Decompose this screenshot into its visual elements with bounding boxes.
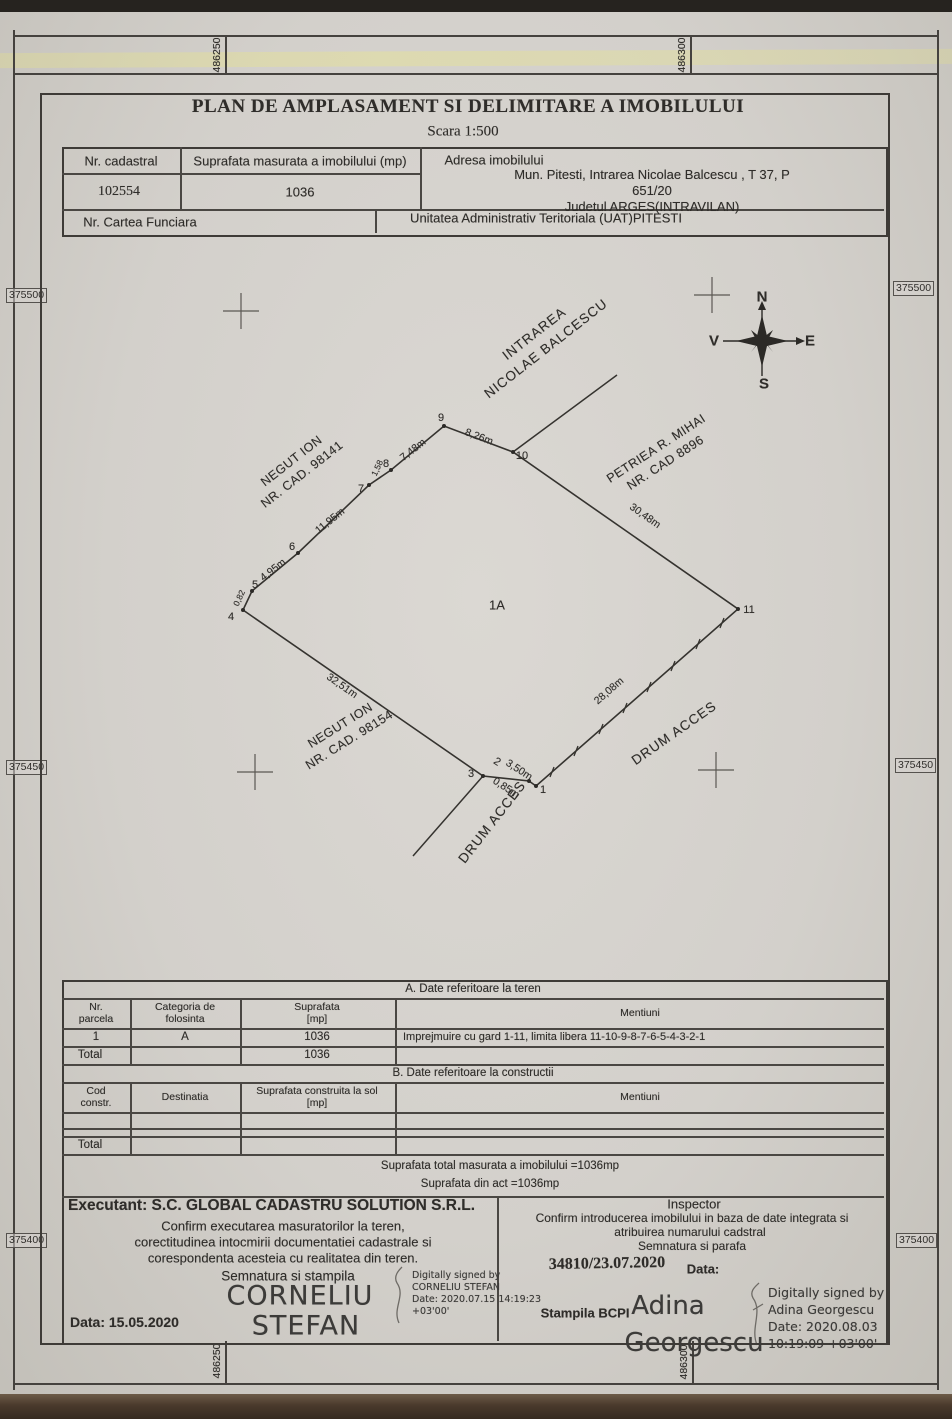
photo-top-edge [0,0,952,12]
street-line [513,375,617,452]
totals-line2: Suprafata din act =1036mp [421,1178,559,1190]
point-9: 9 [438,412,444,424]
table-line [62,1136,884,1138]
table-line [395,998,397,1064]
table-a-header-0: Nr. parcela [79,1001,113,1025]
table-line [62,1046,884,1048]
table-b-header-3: Mentiuni [620,1091,660,1103]
table-line [62,1112,884,1114]
compass-n: N [757,289,768,306]
table-b-title: B. Date referitoare la constructii [392,1067,553,1079]
executant-title: Executant: S.C. GLOBAL CADASTRU SOLUTION… [68,1197,475,1215]
compass-rose [723,301,805,376]
point-5: 5 [252,579,258,591]
inspector-confirm2: atribuirea numarului cadstral [614,1225,765,1239]
table-a-header-3: Mentiuni [620,1007,660,1019]
point-3: 3 [468,768,474,780]
executant-date: Data: 15.05.2020 [70,1314,179,1330]
table-b-header-2: Suprafata construita la sol [mp] [256,1085,377,1109]
table-line [130,1082,132,1154]
table-a-total-value: 1036 [304,1049,330,1061]
compass-e: E [805,333,815,350]
table-line [240,1082,242,1154]
table-line [62,1128,884,1130]
grid-crosses [223,277,734,790]
inspector-stamp-number: 34810/23.07.2020 [549,1254,666,1274]
table-a-row-col2: 1036 [304,1031,330,1043]
inspector-signature-line1: Adina [631,1291,704,1321]
point-7: 7 [358,483,364,495]
table-line [62,998,884,1000]
table-b-header-0: Cod constr. [81,1085,112,1109]
table-line [62,1028,884,1030]
table-a-row-col0: 1 [93,1031,99,1043]
executant-signature-line1: CORNELIU [227,1281,374,1312]
compass-s: S [759,376,769,393]
parcel-id-label: 1A [489,598,505,613]
inspector-signature-line2: Georgescu [624,1328,763,1358]
point-4: 4 [228,611,234,623]
executant-confirm3: corespondenta acesteia cu realitatea din… [148,1251,418,1266]
executant-signature-line2: STEFAN [252,1311,360,1342]
compass-v: V [709,333,719,350]
point-1: 1 [540,784,546,796]
executant-confirm2: corectitudinea intocmirii documentatiei … [135,1235,432,1250]
table-a-total-label: Total [78,1049,102,1061]
table-a-row-col1: A [181,1031,189,1043]
table-a-row-col3: Imprejmuire cu gard 1-11, limita libera … [403,1031,705,1043]
table-line [395,1082,397,1154]
inspector-digital-note: Digitally signed by Adina Georgescu Date… [768,1284,884,1352]
table-a-header-1: Categoria de folosinta [155,1001,215,1025]
table-line [497,1196,499,1341]
point-8: 8 [383,458,389,470]
inspector-semnatura-label: Semnatura si parafa [638,1239,746,1253]
point-10: 10 [516,450,528,462]
executant-digital-note: Digitally signed by CORNELIU STEFAN Date… [412,1270,541,1318]
table-line [62,1082,884,1084]
executant-confirm1: Confirm executarea masuratorilor la tere… [161,1219,405,1234]
table-a-title: A. Date referitoare la teren [405,983,541,995]
table-line [62,1064,884,1066]
point-11: 11 [743,604,754,616]
table-b-header-1: Destinatia [162,1091,209,1103]
point-6: 6 [289,541,295,553]
table-b-total-label: Total [78,1139,102,1151]
inspector-confirm1: Confirm introducerea imobilului in baza … [536,1211,849,1225]
table-line [130,998,132,1064]
table-line [62,1154,884,1156]
inspector-title: Inspector [667,1197,720,1212]
table-line [240,998,242,1064]
inspector-date-label: Data: [687,1262,720,1277]
photo-bottom-edge [0,1394,952,1419]
totals-line1: Suprafata total masurata a imobilului =1… [381,1160,619,1172]
scanned-cadastral-plan: 486250 486300 486250 486300 375500 37545… [0,0,952,1419]
table-a-header-2: Suprafata [mp] [294,1001,340,1025]
inspector-stampila-label: Stampila BCPI [541,1306,630,1321]
